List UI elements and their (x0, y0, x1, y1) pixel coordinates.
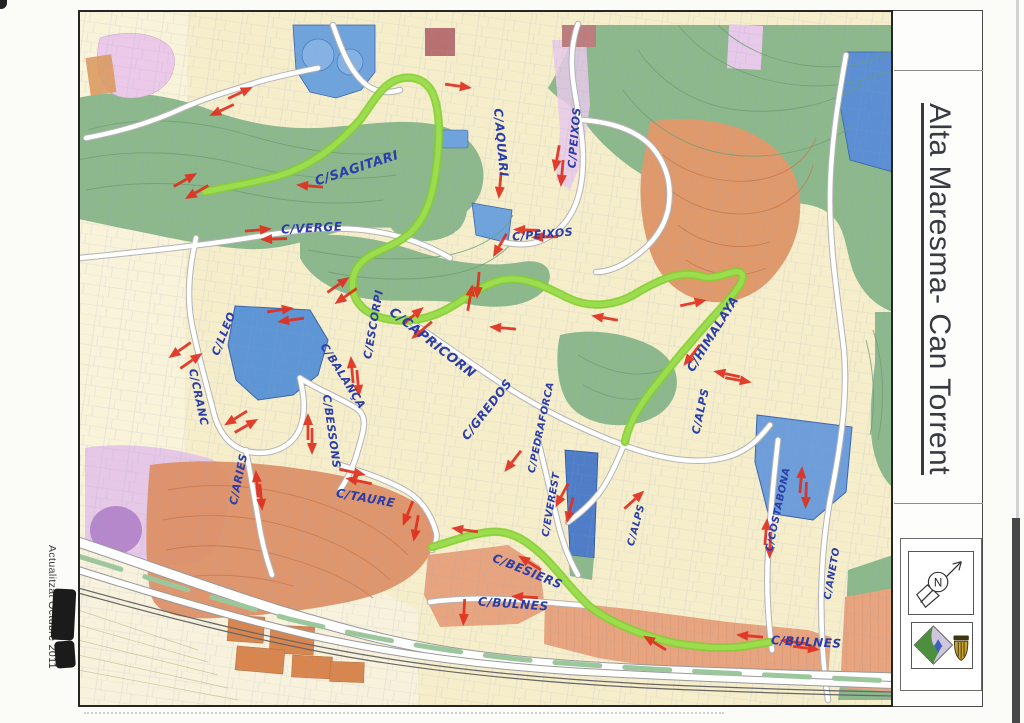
map-canvas: C/SAGITARIC/VERGEC/AQUARIC/PEIXOSC/PEIXO… (80, 12, 891, 705)
page-title: Alta Maresma- Can Torrent (918, 79, 960, 499)
redaction-mark (54, 640, 76, 668)
municipal-logo-icon (911, 622, 973, 669)
map-area: C/SAGITARIC/VERGEC/AQUARIC/PEIXOSC/PEIXO… (78, 10, 893, 707)
svg-text:N: N (934, 576, 942, 589)
title-cell-bottom-line (894, 503, 983, 504)
north-arrow-icon: N (909, 552, 973, 614)
scan-corner-speck (0, 0, 7, 9)
redaction-mark (51, 588, 77, 640)
title-cell-top-line (894, 70, 983, 71)
scan-noise-line (84, 712, 724, 714)
compass-box: N (908, 551, 974, 615)
scan-edge-artifact (1012, 518, 1020, 723)
